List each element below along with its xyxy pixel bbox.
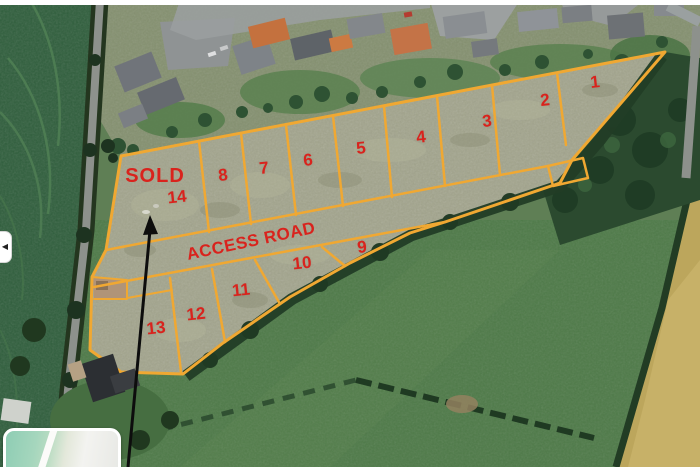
left-arrow-icon: ◀	[2, 243, 8, 251]
screenshot-root: SOLD ACCESS ROAD 1234567891011121314 ◀	[0, 0, 700, 467]
top-white-bar	[0, 0, 700, 5]
minimap-road	[29, 428, 57, 467]
minimap-thumbnail[interactable]	[3, 428, 121, 467]
prev-image-button[interactable]: ◀	[0, 231, 12, 263]
aerial-photo	[0, 0, 700, 467]
